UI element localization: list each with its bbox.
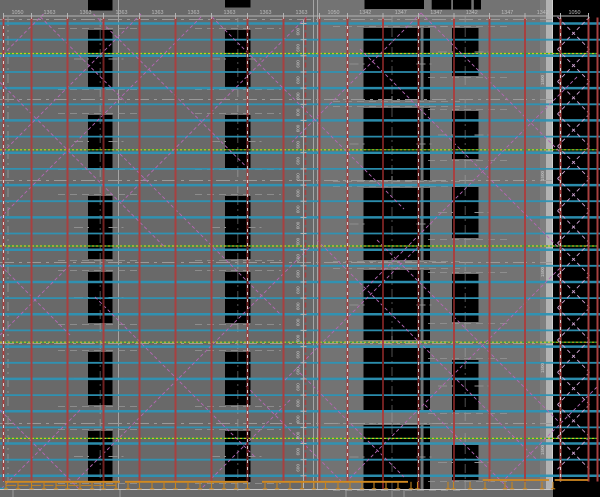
svg-text:600: 600 [296, 189, 301, 197]
svg-text:1363: 1363 [44, 10, 56, 16]
svg-text:600: 600 [296, 367, 301, 375]
svg-text:600: 600 [296, 286, 301, 294]
svg-text:600: 600 [296, 254, 301, 262]
svg-text:600: 600 [296, 108, 301, 116]
svg-text:600: 600 [296, 221, 301, 229]
svg-text:600: 600 [296, 415, 301, 423]
svg-text:600: 600 [296, 76, 301, 84]
svg-text:1363: 1363 [116, 10, 128, 16]
svg-text:1050: 1050 [12, 10, 24, 16]
svg-text:1342: 1342 [466, 10, 478, 16]
svg-text:600: 600 [296, 399, 301, 407]
svg-text:1363: 1363 [224, 10, 236, 16]
svg-text:600: 600 [296, 27, 301, 35]
svg-text:1347: 1347 [501, 10, 513, 16]
svg-text:1500: 1500 [540, 266, 545, 277]
svg-text:600: 600 [296, 334, 301, 342]
svg-text:600: 600 [296, 270, 301, 278]
svg-text:600: 600 [296, 350, 301, 358]
svg-text:1050: 1050 [569, 10, 581, 16]
svg-text:600: 600 [296, 92, 301, 100]
svg-text:600: 600 [296, 318, 301, 326]
svg-text:600: 600 [296, 383, 301, 391]
svg-text:1363: 1363 [152, 10, 164, 16]
svg-text:600: 600 [296, 205, 301, 213]
svg-text:1342: 1342 [537, 10, 549, 16]
svg-text:1500: 1500 [540, 444, 545, 455]
svg-text:600: 600 [296, 60, 301, 68]
svg-text:1347: 1347 [430, 10, 442, 16]
svg-text:600: 600 [296, 44, 301, 52]
svg-text:1500: 1500 [540, 74, 545, 85]
svg-text:600: 600 [296, 447, 301, 455]
svg-text:1363: 1363 [188, 10, 200, 16]
svg-text:600: 600 [296, 431, 301, 439]
svg-text:1363: 1363 [80, 10, 92, 16]
svg-text:1050: 1050 [328, 10, 340, 16]
svg-text:600: 600 [296, 140, 301, 148]
svg-text:1363: 1363 [296, 10, 308, 16]
svg-text:1347: 1347 [395, 10, 407, 16]
svg-text:600: 600 [296, 173, 301, 181]
svg-text:1342: 1342 [359, 10, 371, 16]
svg-text:600: 600 [296, 464, 301, 472]
svg-text:600: 600 [296, 237, 301, 245]
svg-text:600: 600 [296, 124, 301, 132]
svg-text:1363: 1363 [260, 10, 272, 16]
svg-text:1500: 1500 [540, 170, 545, 181]
svg-text:600: 600 [296, 302, 301, 310]
svg-text:1500: 1500 [540, 362, 545, 373]
svg-text:600: 600 [296, 157, 301, 165]
